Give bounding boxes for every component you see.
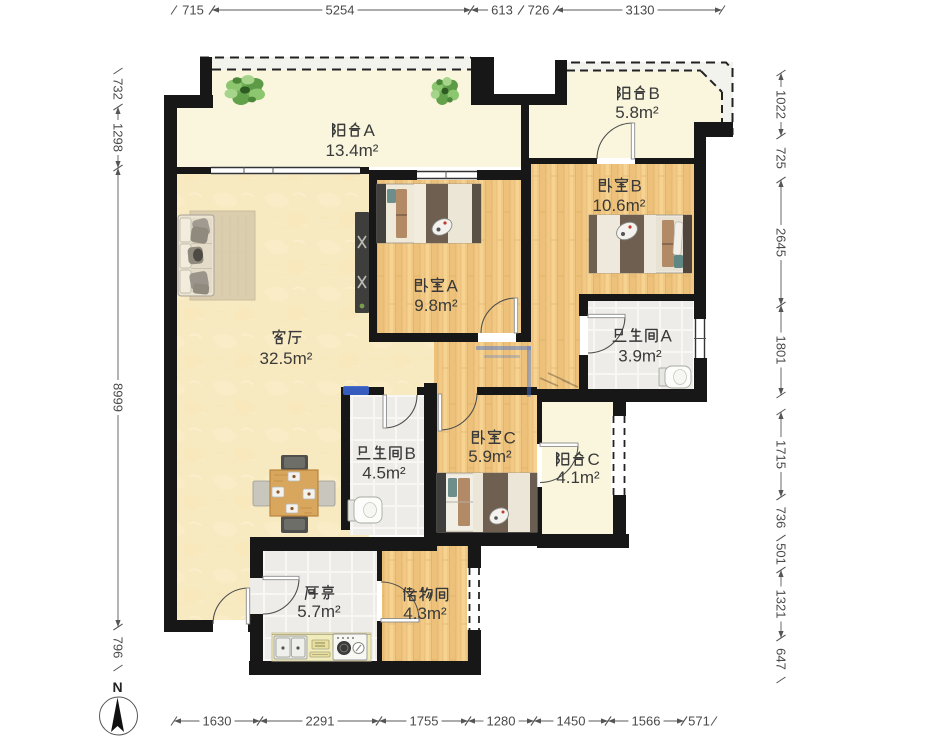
svg-text:8999: 8999: [110, 383, 125, 412]
svg-text:1450: 1450: [557, 714, 586, 729]
svg-text:647: 647: [773, 648, 788, 670]
svg-text:32.5m²: 32.5m²: [260, 349, 313, 368]
svg-text:4.5m²: 4.5m²: [362, 464, 406, 483]
svg-text:9.8m²: 9.8m²: [414, 296, 458, 315]
svg-text:501: 501: [773, 543, 788, 565]
svg-text:2291: 2291: [306, 714, 335, 729]
svg-text:5.9m²: 5.9m²: [468, 447, 512, 466]
svg-text:B: B: [630, 176, 641, 195]
svg-text:1321: 1321: [773, 590, 788, 619]
svg-text:1566: 1566: [632, 714, 661, 729]
svg-text:4.3m²: 4.3m²: [403, 604, 447, 623]
svg-text:1630: 1630: [203, 714, 232, 729]
svg-text:13.4m²: 13.4m²: [326, 141, 379, 160]
svg-text:1298: 1298: [110, 123, 125, 152]
svg-text:1801: 1801: [773, 336, 788, 365]
svg-text:B: B: [648, 84, 659, 103]
svg-text:571: 571: [688, 714, 710, 729]
svg-text:613: 613: [491, 3, 513, 18]
svg-text:1715: 1715: [773, 440, 788, 469]
svg-text:A: A: [446, 276, 458, 295]
svg-text:5254: 5254: [326, 3, 355, 18]
svg-text:715: 715: [182, 3, 204, 18]
svg-text:3130: 3130: [626, 3, 655, 18]
svg-text:726: 726: [528, 3, 550, 18]
svg-text:1280: 1280: [487, 714, 516, 729]
svg-text:B: B: [404, 444, 415, 463]
svg-text:C: C: [503, 428, 515, 447]
svg-text:4.1m²: 4.1m²: [556, 468, 600, 487]
svg-text:1022: 1022: [773, 90, 788, 119]
svg-text:3.9m²: 3.9m²: [618, 347, 662, 366]
svg-text:A: A: [363, 121, 375, 140]
svg-text:N: N: [112, 679, 122, 695]
svg-text:732: 732: [110, 78, 125, 100]
svg-text:736: 736: [773, 507, 788, 529]
svg-text:796: 796: [110, 637, 125, 659]
svg-text:5.8m²: 5.8m²: [615, 103, 659, 122]
svg-text:2645: 2645: [773, 228, 788, 257]
svg-text:725: 725: [773, 147, 788, 169]
svg-text:A: A: [660, 326, 672, 345]
svg-text:10.6m²: 10.6m²: [593, 196, 646, 215]
svg-text:5.7m²: 5.7m²: [297, 602, 341, 621]
svg-text:C: C: [587, 450, 599, 469]
svg-text:1755: 1755: [410, 714, 439, 729]
